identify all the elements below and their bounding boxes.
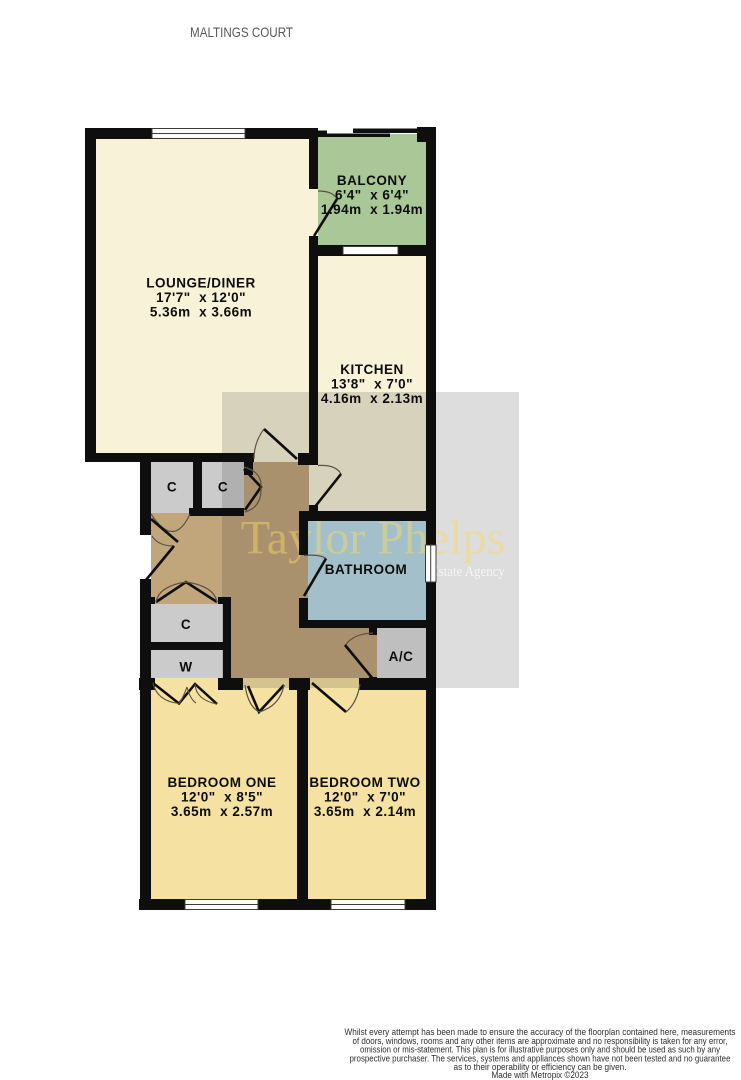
svg-text:12'0" x 7'0": 12'0" x 7'0" (324, 790, 406, 805)
svg-text:MALTINGS COURT: MALTINGS COURT (190, 24, 293, 40)
svg-text:BEDROOM TWO: BEDROOM TWO (309, 775, 420, 790)
svg-text:W: W (179, 660, 192, 675)
svg-text:BALCONY: BALCONY (337, 173, 407, 188)
svg-text:KITCHEN: KITCHEN (340, 362, 404, 377)
svg-text:Made with Metropix ©2023: Made with Metropix ©2023 (492, 1070, 589, 1080)
svg-text:Estate Agency: Estate Agency (431, 564, 505, 580)
svg-text:3.65m x 2.57m: 3.65m x 2.57m (171, 804, 273, 819)
svg-text:BEDROOM ONE: BEDROOM ONE (167, 775, 276, 790)
svg-text:12'0" x 8'5": 12'0" x 8'5" (181, 790, 263, 805)
svg-text:5.36m x 3.66m: 5.36m x 3.66m (150, 305, 252, 320)
svg-text:4.16m x 2.13m: 4.16m x 2.13m (321, 391, 423, 406)
svg-text:A/C: A/C (389, 649, 414, 664)
svg-text:17'7" x 12'0": 17'7" x 12'0" (156, 290, 246, 305)
svg-text:3.65m x 2.14m: 3.65m x 2.14m (314, 804, 416, 819)
svg-text:BATHROOM: BATHROOM (325, 562, 408, 577)
svg-text:6'4" x 6'4": 6'4" x 6'4" (335, 188, 409, 203)
svg-text:1.94m x 1.94m: 1.94m x 1.94m (321, 202, 423, 217)
svg-text:C: C (218, 480, 228, 495)
svg-text:C: C (181, 617, 191, 632)
svg-text:C: C (167, 480, 177, 495)
svg-text:13'8" x 7'0": 13'8" x 7'0" (331, 377, 413, 392)
svg-text:LOUNGE/DINER: LOUNGE/DINER (146, 276, 256, 291)
